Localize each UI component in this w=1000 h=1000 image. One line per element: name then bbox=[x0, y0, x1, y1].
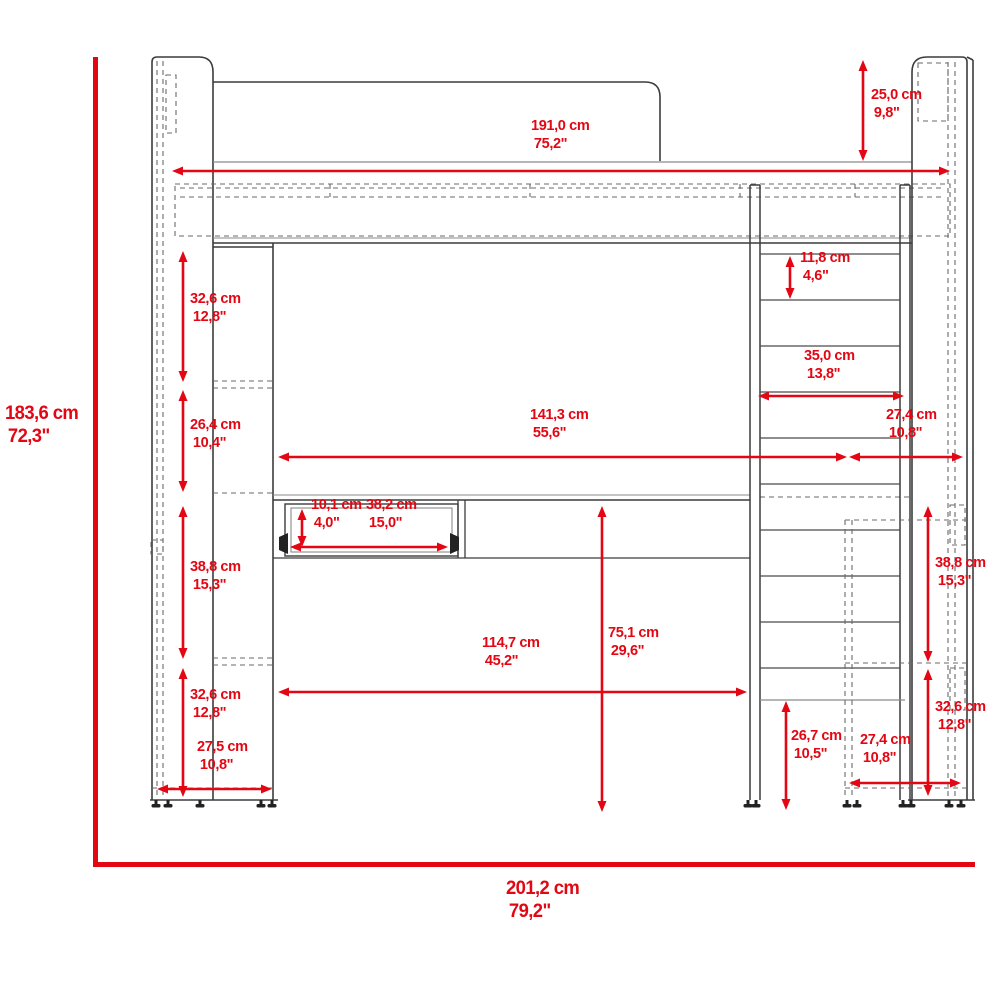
dim-drawer-width: 38,2 cm15,0" bbox=[366, 496, 417, 532]
dim-bed-length: 191,0 cm75,2" bbox=[531, 117, 589, 153]
dim-right-depth-lower: 27,4 cm10,8" bbox=[860, 731, 911, 767]
dim-left-shelf-bottom: 32,6 cm12,8" bbox=[190, 686, 241, 722]
ladder-rungs bbox=[760, 254, 905, 700]
dim-desk-height: 75,1 cm29,6" bbox=[608, 624, 659, 660]
dim-right-shelf-upper: 38,8 cm15,3" bbox=[935, 554, 986, 590]
headboard-panel bbox=[213, 82, 660, 161]
dimension-diagram: 183,6 cm72,3" 201,2 cm79,2" 191,0 cm75,2… bbox=[0, 0, 1000, 1000]
dim-ladder-rung-spacing: 11,8 cm4,6" bbox=[800, 249, 850, 285]
dim-desk-width: 114,7 cm45,2" bbox=[482, 634, 540, 670]
overall-width-label: 201,2 cm79,2" bbox=[506, 878, 579, 924]
dim-under-shelf-right: 26,7 cm10,5" bbox=[791, 727, 842, 763]
dim-underbed-clear-width: 141,3 cm55,6" bbox=[530, 406, 588, 442]
furniture-line-drawing bbox=[0, 0, 1000, 1000]
mattress-hidden-lines bbox=[175, 184, 950, 236]
feet bbox=[152, 800, 966, 808]
bed-platform bbox=[213, 162, 912, 243]
dim-left-shelf-upper: 32,6 cm12,8" bbox=[190, 290, 241, 326]
dim-drawer-height: 10,1 cm4,0" bbox=[311, 496, 362, 532]
dim-left-shelf-middle: 26,4 cm10,4" bbox=[190, 416, 241, 452]
dim-left-shelf-lower: 38,8 cm15,3" bbox=[190, 558, 241, 594]
dim-left-depth: 27,5 cm10,8" bbox=[197, 738, 248, 774]
dim-right-shelf-lower: 32,6 cm12,8" bbox=[935, 698, 986, 734]
overall-height-label: 183,6 cm72,3" bbox=[5, 403, 78, 449]
dim-headboard-height: 25,0 cm9,8" bbox=[871, 86, 922, 122]
dim-right-depth-upper: 27,4 cm10,8" bbox=[886, 406, 937, 442]
drawer-slide-left bbox=[279, 533, 288, 554]
dim-ladder-width: 35,0 cm13,8" bbox=[804, 347, 855, 383]
